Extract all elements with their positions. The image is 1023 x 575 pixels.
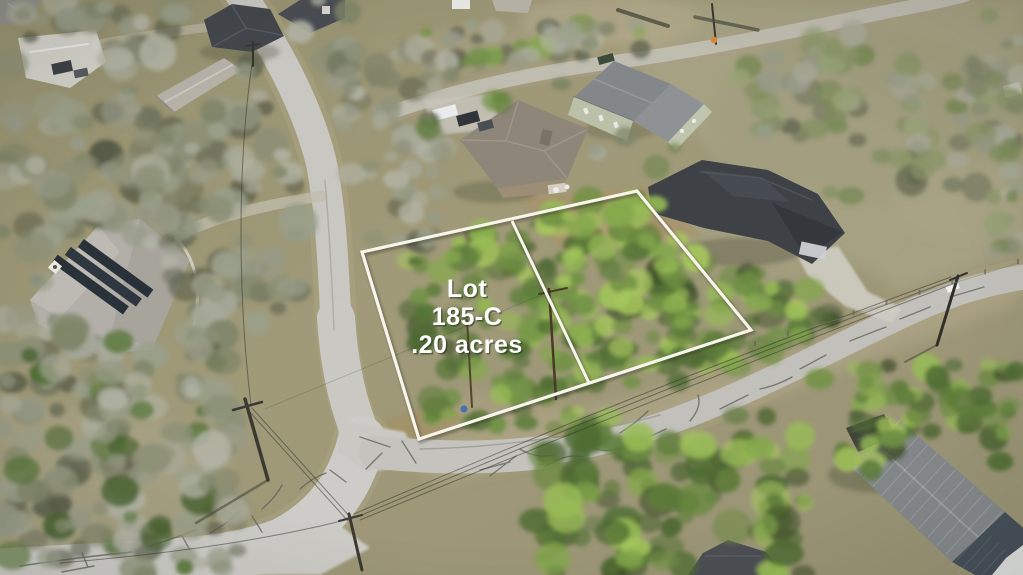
- lot-label-line3: .20 acres: [411, 331, 523, 359]
- aerial-photo: Lot 185-C .20 acres Lot 185-C .20 acres: [0, 0, 1023, 575]
- lot-label-line1: Lot: [447, 275, 488, 303]
- vignette: [0, 0, 1023, 575]
- lot-label-line2: 185-C: [432, 303, 503, 331]
